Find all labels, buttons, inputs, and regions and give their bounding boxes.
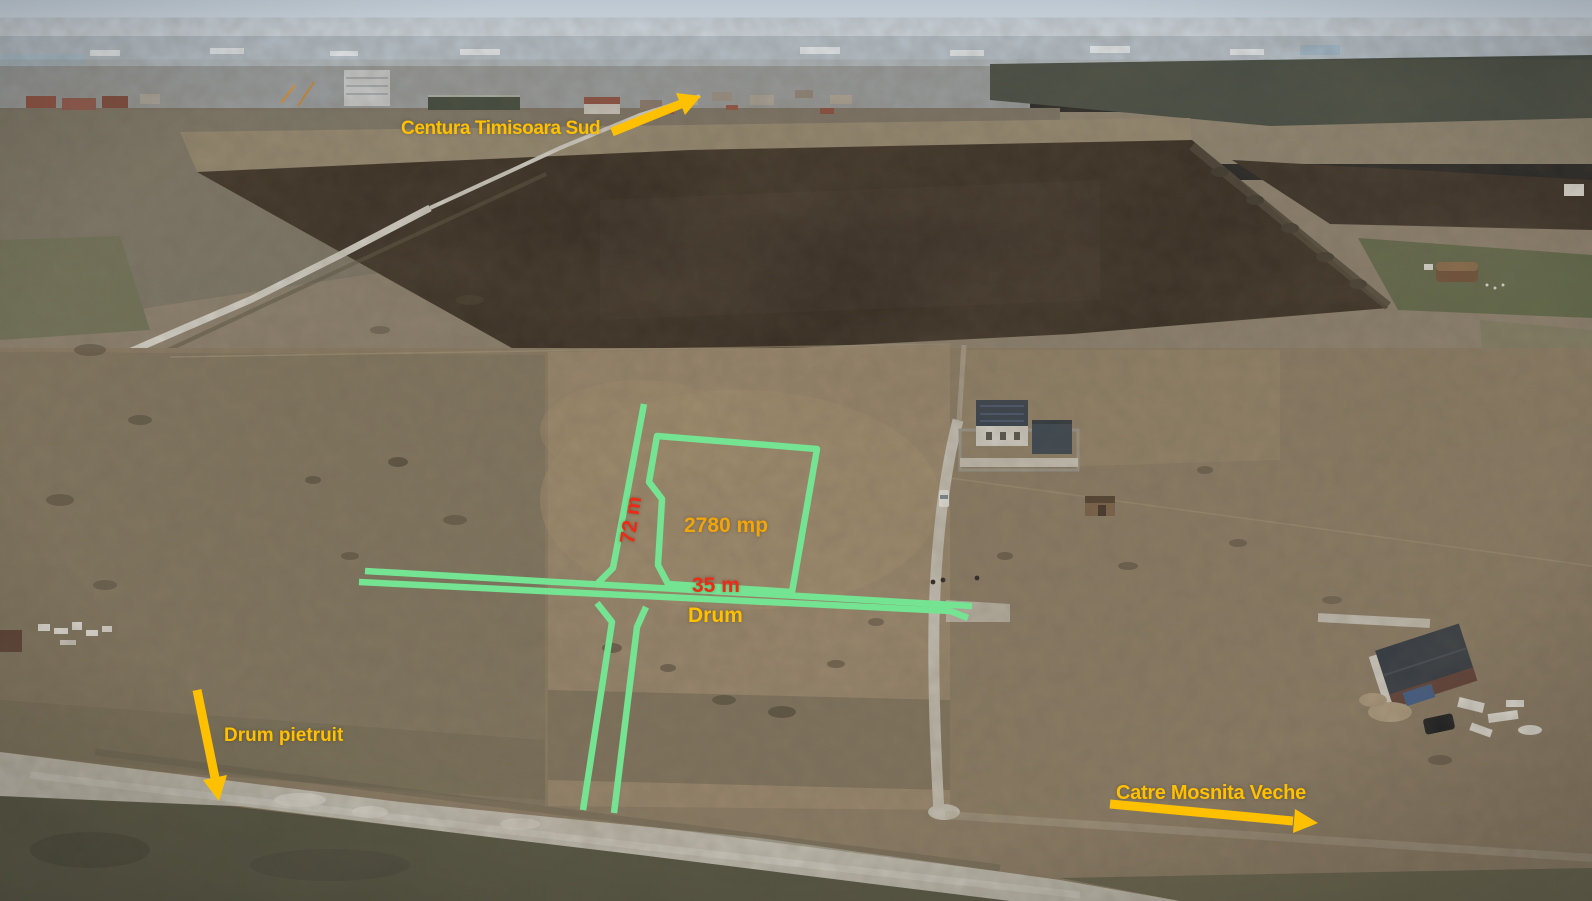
- label-area-2780mp: 2780 mp: [684, 515, 768, 536]
- label-catre-mosnita-veche: Catre Mosnita Veche: [1116, 783, 1306, 803]
- label-centura-timisoara-sud: Centura Timisoara Sud: [401, 119, 600, 138]
- label-drum-pietruit: Drum pietruit: [224, 726, 343, 745]
- aerial-photo: Centura Timisoara Sud 72 m 2780 mp 35 m …: [0, 0, 1592, 901]
- label-frontage-35m: 35 m: [692, 575, 740, 596]
- label-drum: Drum: [688, 605, 743, 626]
- photo-scene: [0, 0, 1592, 901]
